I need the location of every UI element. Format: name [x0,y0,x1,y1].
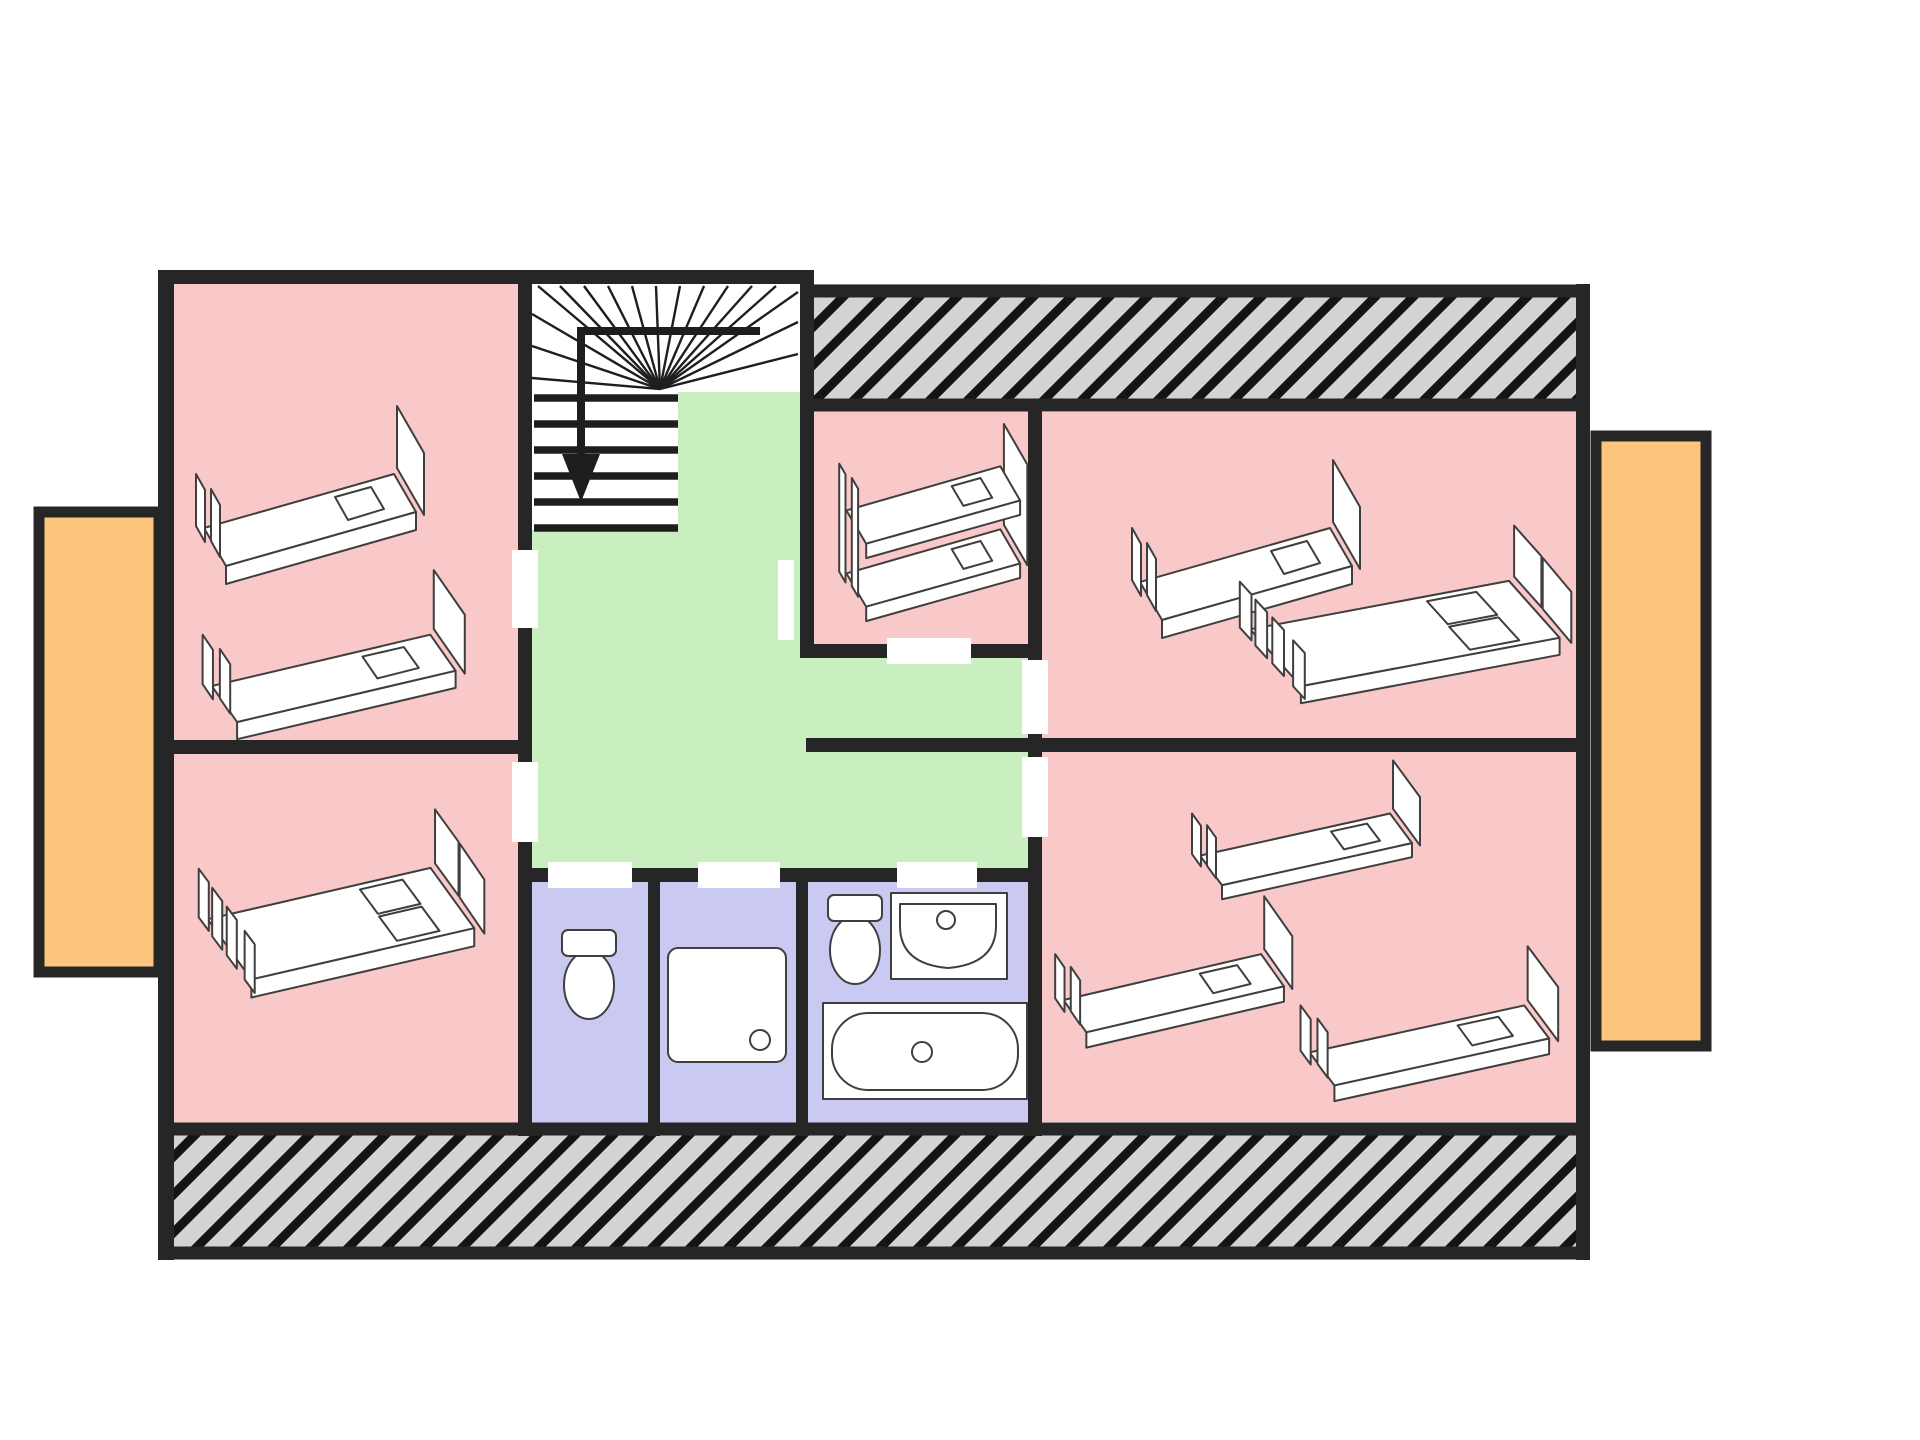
wall-segment [806,738,1590,752]
wall-segment [158,740,532,754]
wall-segment [158,270,174,1260]
wall-segment [796,868,808,1136]
balcony-right [1596,436,1706,1046]
bathtub [823,1003,1027,1099]
wall-segment [518,284,532,1136]
door-opening [1022,660,1048,734]
door-opening [897,862,977,888]
shower [668,948,786,1062]
wall-segment [1576,284,1590,1260]
door-opening [512,762,538,842]
wall-segment [800,284,814,658]
door-opening [887,638,971,664]
door-opening [1022,757,1048,837]
white-patch [778,560,794,640]
balcony-left [39,512,159,972]
door-opening [548,862,632,888]
stairwell-floor [532,392,678,530]
toilet [828,895,882,984]
wall-segment [158,270,814,284]
toilet [562,930,616,1019]
floor-plan-drawing [0,0,1920,1440]
washbasin [891,893,1007,979]
roof-strip-top [807,291,1583,405]
wall-segment [648,868,660,1136]
roof-strip-bottom [165,1129,1583,1253]
floor-plan-page [0,0,1920,1440]
door-opening [512,550,538,628]
door-opening [698,862,780,888]
